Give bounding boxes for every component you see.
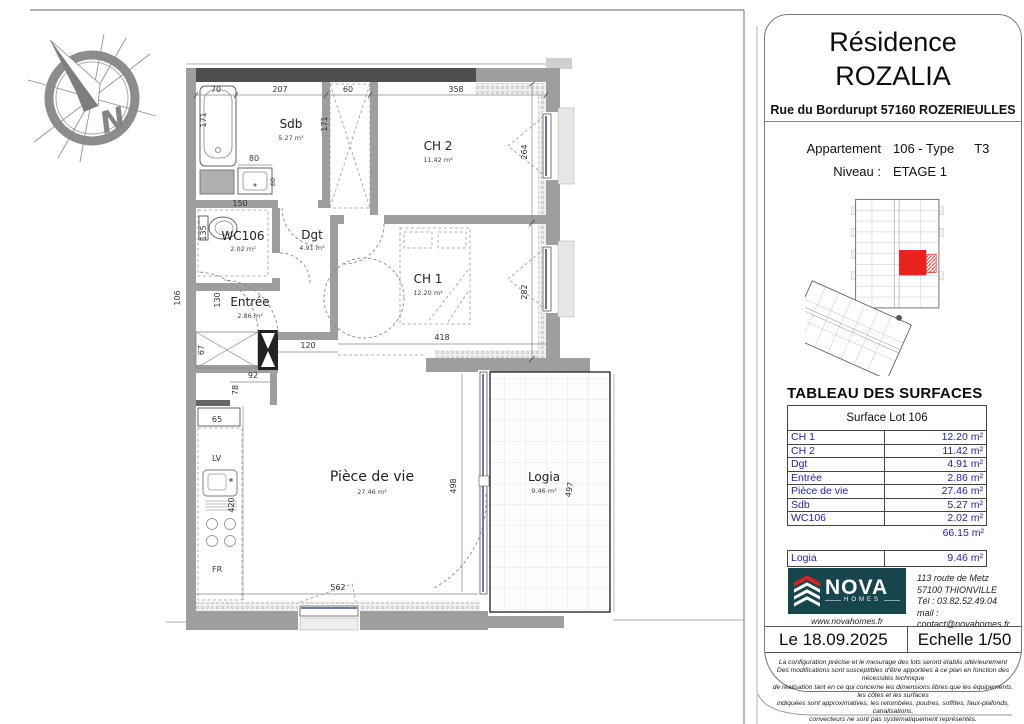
- svg-text:2.86 m²: 2.86 m²: [237, 312, 263, 320]
- bath-cabinet: [200, 170, 234, 194]
- svg-text:67: 67: [197, 345, 206, 355]
- svg-text:171: 171: [199, 112, 208, 127]
- apartment-type: T3: [974, 141, 989, 156]
- plan-date: Le 18.09.2025: [765, 630, 907, 650]
- svg-text:12.20 m²: 12.20 m²: [413, 289, 443, 297]
- title-block: Résidence ROZALIA Rue du Bordurupt 57160…: [764, 14, 1022, 692]
- company-contact: 113 route de Metz 57100 THIONVILLE Tél :…: [917, 573, 1021, 631]
- plan-sheet: N: [0, 0, 1024, 724]
- company-phone: Tél : 03.82.52.49.04: [917, 596, 1021, 608]
- company-website: www.novahomes.fr: [788, 616, 906, 626]
- svg-text:106: 106: [173, 290, 182, 305]
- apartment-row: Appartement 106 - Type T3: [765, 141, 1021, 156]
- svg-text:207: 207: [272, 85, 287, 94]
- residence-title: Résidence: [765, 27, 1021, 58]
- date-scale-row: Le 18.09.2025 Echelle 1/50: [765, 626, 1021, 653]
- svg-text:70: 70: [211, 85, 221, 94]
- kitchen-block: LV FR: [198, 406, 243, 600]
- svg-text:5.27 m²: 5.27 m²: [278, 134, 304, 142]
- svg-text:498: 498: [449, 478, 458, 493]
- svg-text:420: 420: [227, 497, 236, 512]
- closet-placard: [330, 84, 370, 208]
- svg-text:282: 282: [520, 284, 529, 299]
- washbasin: [238, 168, 272, 194]
- surface-table-title: TABLEAU DES SURFACES: [787, 385, 982, 402]
- window-living: [298, 584, 360, 632]
- svg-text:2.02 m²: 2.02 m²: [230, 245, 256, 253]
- divider: [765, 121, 1021, 122]
- svg-text:11.42 m²: 11.42 m²: [423, 156, 453, 164]
- room-entree-label: Entrée: [230, 295, 269, 309]
- svg-text:264: 264: [520, 144, 529, 159]
- compass-north-label: N: [96, 101, 131, 142]
- table-row: CH 211.42 m²: [787, 445, 987, 459]
- apartment-label: Appartement: [765, 141, 881, 156]
- svg-text:92: 92: [248, 371, 258, 380]
- svg-text:130: 130: [213, 292, 222, 307]
- nova-logo-icon: [794, 574, 820, 608]
- room-logia-label: Logia: [528, 470, 560, 484]
- svg-text:120: 120: [300, 341, 315, 350]
- svg-text:65: 65: [212, 415, 222, 424]
- svg-text:78: 78: [231, 385, 240, 395]
- svg-text:171: 171: [320, 116, 329, 131]
- svg-text:9.46 m²: 9.46 m²: [531, 487, 557, 495]
- surface-table: Surface Lot 106 CH 112.20 m² CH 211.42 m…: [787, 405, 987, 567]
- compass-icon: N: [28, 34, 156, 162]
- table-row: CH 112.20 m²: [787, 431, 987, 445]
- logia-row: Logia 9.46 m²: [787, 550, 987, 567]
- svg-text:80: 80: [249, 154, 259, 163]
- svg-text:418: 418: [434, 333, 449, 342]
- room-ch2-label: CH 2: [424, 139, 453, 153]
- level-value: ETAGE 1: [893, 164, 947, 179]
- svg-text:60: 60: [343, 85, 353, 94]
- table-row: Dgt4.91 m²: [787, 458, 987, 472]
- svg-text:135: 135: [199, 225, 208, 240]
- kitchen-hob: [207, 519, 236, 547]
- svg-text:358: 358: [448, 85, 463, 94]
- svg-text:562: 562: [330, 583, 345, 592]
- table-row: WC1062.02 m²: [787, 512, 987, 526]
- location-plan: [805, 191, 995, 376]
- logo-name: NOVA: [825, 579, 900, 597]
- residence-address: Rue du Bordurupt 57160 ROZERIEULLES: [765, 103, 1021, 117]
- level-label: Niveau :: [765, 164, 881, 179]
- apartment-value: 106 - Type: [893, 141, 954, 156]
- level-row: Niveau : ETAGE 1: [765, 164, 1021, 179]
- company-logo: NOVA HOMES: [788, 568, 906, 614]
- room-pdv-label: Pièce de vie: [330, 469, 414, 485]
- logia-highlight: [926, 255, 936, 273]
- svg-text:60: 60: [269, 178, 277, 186]
- company-address2: 57100 THIONVILLE: [917, 585, 1021, 597]
- svg-text:27.46 m²: 27.46 m²: [357, 488, 387, 496]
- table-row: Sdb5.27 m²: [787, 499, 987, 513]
- room-sdb-label: Sdb: [280, 117, 303, 131]
- disclaimer: La configuration précise et le mesurage …: [771, 659, 1015, 724]
- room-dgt-label: Dgt: [301, 228, 323, 242]
- residence-name: ROZALIA: [765, 61, 1021, 92]
- table-row: Entrée2.86 m²: [787, 472, 987, 486]
- kitchen-lv-label: LV: [212, 454, 222, 463]
- floor-plan: N: [0, 0, 760, 724]
- company-address1: 113 route de Metz: [917, 573, 1021, 585]
- site-marker: [896, 315, 902, 321]
- apartment-highlight: [899, 250, 926, 275]
- entrance-door-icon: [258, 330, 278, 370]
- table-row: Pièce de vie27.46 m²: [787, 485, 987, 499]
- surface-total: 66.15 m²: [787, 526, 987, 541]
- plan-scale: Echelle 1/50: [908, 630, 1021, 650]
- room-wc-label: WC106: [221, 229, 264, 243]
- building-upper: [851, 199, 943, 308]
- svg-text:4.91 m²: 4.91 m²: [299, 244, 325, 252]
- surface-table-header: Surface Lot 106: [787, 405, 987, 431]
- svg-text:150: 150: [232, 199, 247, 208]
- room-ch1-label: CH 1: [414, 272, 443, 286]
- kitchen-fr-label: FR: [212, 565, 223, 574]
